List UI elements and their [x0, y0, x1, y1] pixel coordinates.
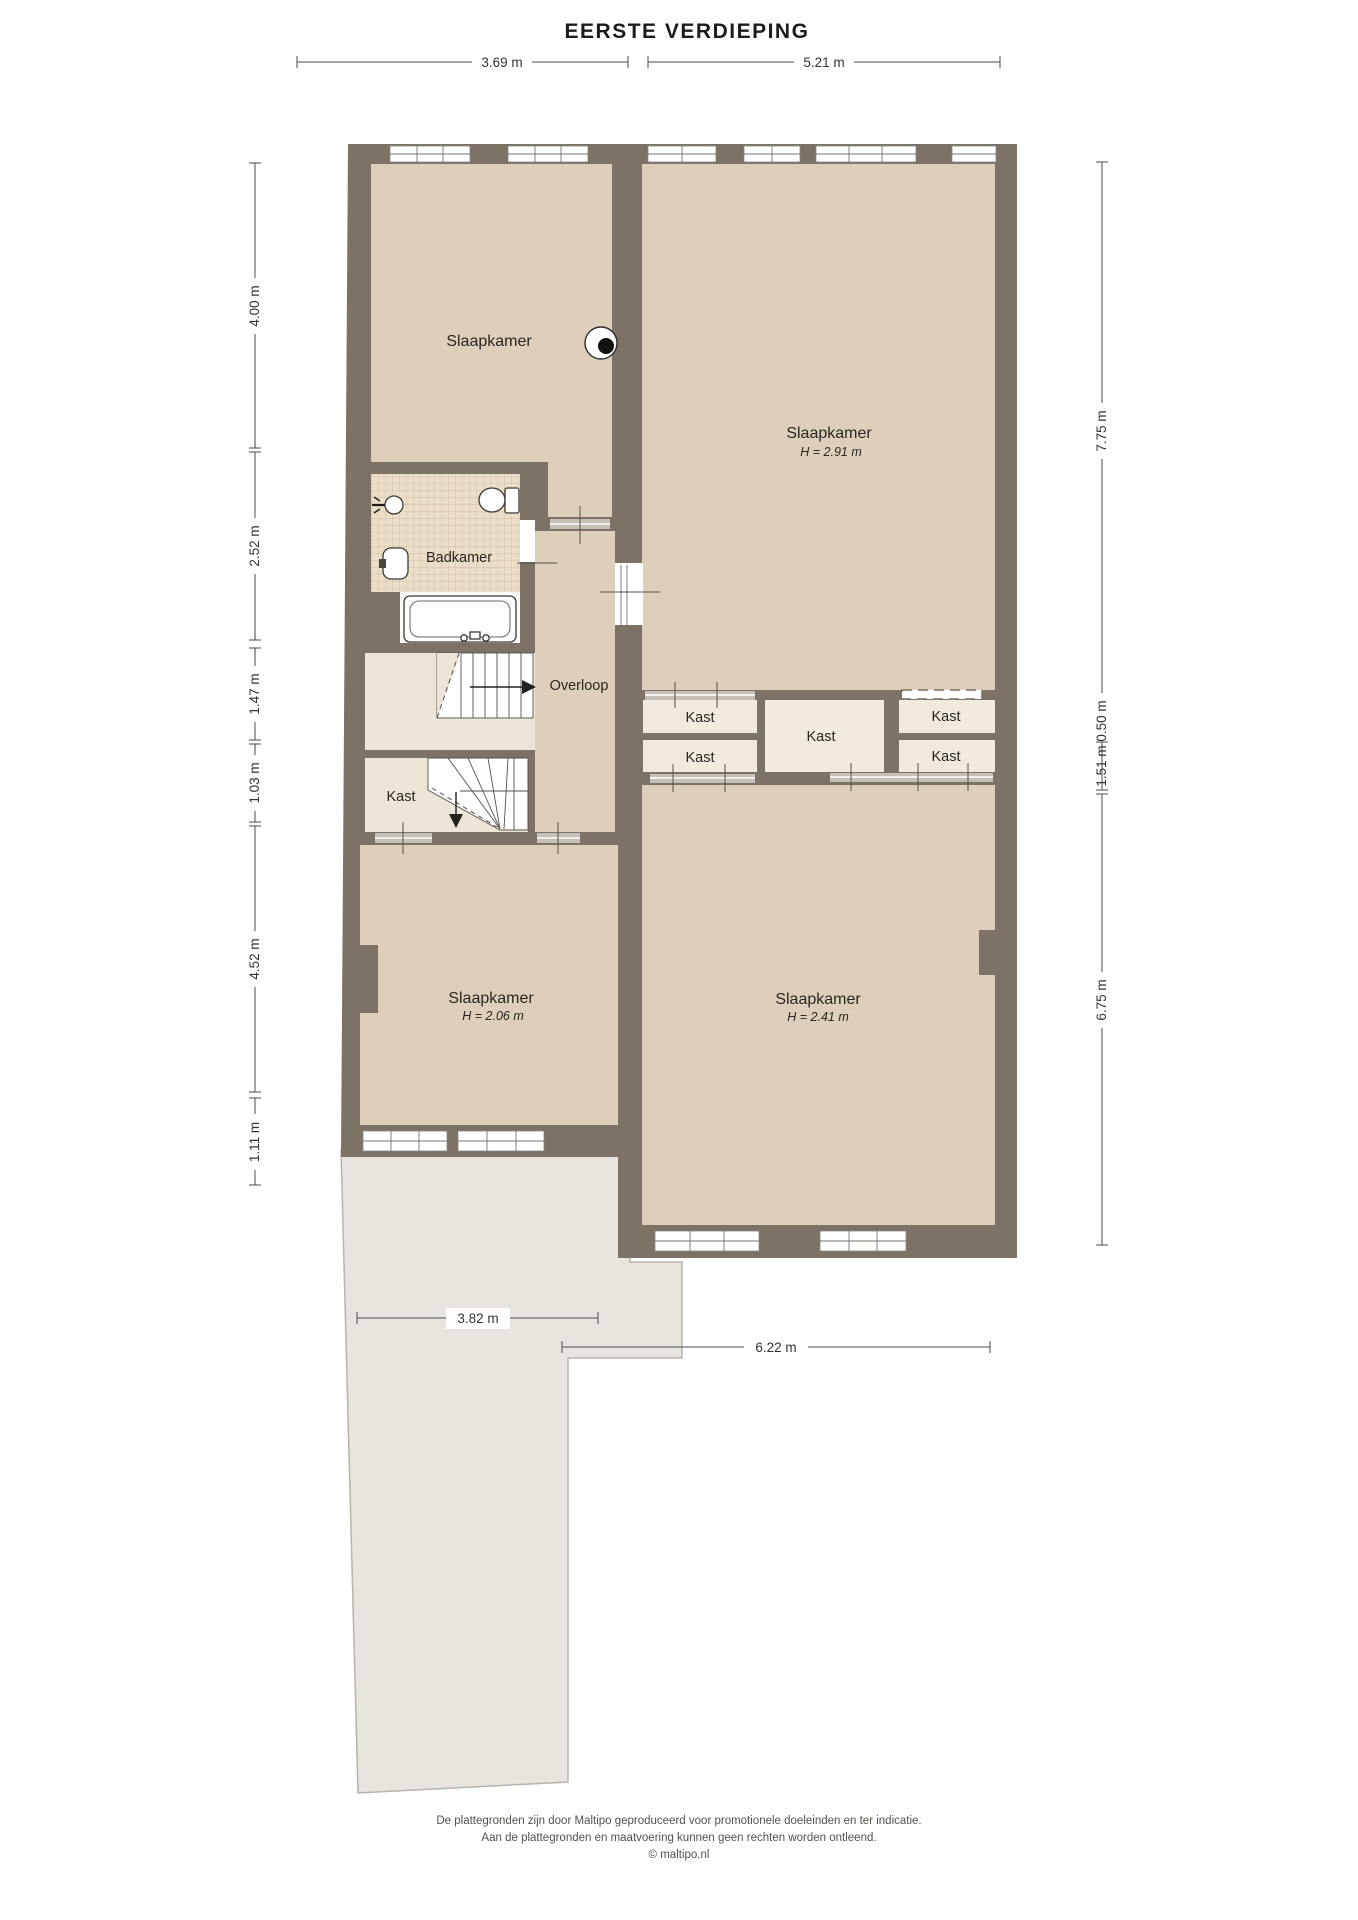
- flue-icon: [585, 327, 617, 359]
- dim-left-2: 2.52 m: [244, 452, 266, 640]
- room-label-closet-e: Kast: [931, 749, 960, 765]
- room-height-bedroom-tr: H = 2.91 m: [800, 445, 862, 459]
- dim-left-3: 1.47 m: [244, 648, 266, 740]
- footer-line-1: De plattegronden zijn door Maltipo gepro…: [436, 1815, 921, 1827]
- room-label-bedroom-tr: Slaapkamer: [786, 425, 872, 442]
- room-label-closet-stairs: Kast: [386, 789, 415, 805]
- folding-door: [902, 690, 982, 699]
- footer-line-3: © maltipo.nl: [649, 1849, 710, 1861]
- dim-label: 6.22 m: [755, 1340, 796, 1355]
- dim-right-1: 7.75 m: [1091, 162, 1113, 700]
- dim-top-1: 3.69 m: [297, 52, 628, 72]
- window: [363, 1131, 447, 1151]
- dim-right-3: 1.51 m: [1094, 742, 1109, 790]
- window: [655, 1231, 759, 1251]
- page-title: EERSTE VERDIEPING: [565, 20, 810, 43]
- room-label-bedroom-bl: Slaapkamer: [448, 990, 534, 1007]
- window: [648, 146, 716, 162]
- bathtub-icon: [404, 596, 516, 642]
- dim-right-4: 6.75 m: [1091, 794, 1113, 1245]
- dim-left-1: 4.00 m: [244, 163, 266, 448]
- shower-icon: [372, 496, 403, 514]
- dim-right-2: 0.50 m: [1091, 693, 1113, 749]
- room-height-bedroom-br: H = 2.41 m: [787, 1010, 849, 1024]
- room-label-bathroom: Badkamer: [426, 550, 492, 566]
- floor-bedroom-bl: [360, 845, 618, 1125]
- dim-label: 1.47 m: [247, 673, 262, 714]
- window: [458, 1131, 544, 1151]
- stairs-up: [437, 653, 536, 718]
- window: [952, 146, 996, 162]
- chimney-pier: [360, 945, 378, 1013]
- window: [744, 146, 800, 162]
- window: [816, 146, 916, 162]
- dim-label: 6.75 m: [1094, 979, 1109, 1020]
- dim-left-5: 4.52 m: [244, 826, 266, 1092]
- wall-closet-hall: [528, 758, 535, 832]
- room-label-closet-b: Kast: [685, 750, 714, 766]
- window: [390, 146, 470, 162]
- dim-label: 1.51 m: [1094, 745, 1109, 786]
- dim-top-2: 5.21 m: [648, 52, 1000, 72]
- dim-label: 3.82 m: [457, 1311, 498, 1326]
- room-label-closet-d: Kast: [931, 709, 960, 725]
- dim-left-4: 1.03 m: [244, 744, 266, 822]
- dim-label: 0.50 m: [1094, 700, 1109, 741]
- footer-disclaimer: De plattegronden zijn door Maltipo gepro…: [436, 1815, 921, 1861]
- room-height-bedroom-bl: H = 2.06 m: [462, 1009, 524, 1023]
- toilet-icon: [479, 488, 519, 513]
- floorplan-canvas: EERSTE VERDIEPING: [0, 0, 1358, 1920]
- room-label-closet-c: Kast: [806, 729, 835, 745]
- dim-label: 1.11 m: [247, 1122, 262, 1162]
- dim-label: 2.52 m: [247, 525, 262, 566]
- room-label-bedroom-br: Slaapkamer: [775, 991, 861, 1008]
- room-label-closet-a: Kast: [685, 710, 714, 726]
- dim-label: 4.00 m: [247, 285, 262, 326]
- dim-label: 4.52 m: [247, 938, 262, 979]
- window: [820, 1231, 906, 1251]
- dim-label: 1.03 m: [247, 762, 262, 803]
- room-label-landing: Overloop: [550, 678, 609, 694]
- footer-line-2: Aan de plattegronden en maatvoering kunn…: [481, 1832, 876, 1844]
- dim-left-6: 1.11 m: [244, 1098, 266, 1185]
- wall-pier-right: [979, 930, 995, 975]
- dim-label: 5.21 m: [803, 55, 844, 70]
- room-label-bedroom-tl: Slaapkamer: [446, 333, 532, 350]
- washbasin-icon: [379, 548, 408, 579]
- window: [508, 146, 588, 162]
- dim-label: 3.69 m: [481, 55, 522, 70]
- wall-stair-closet: [365, 750, 533, 758]
- dim-label: 7.75 m: [1094, 410, 1109, 451]
